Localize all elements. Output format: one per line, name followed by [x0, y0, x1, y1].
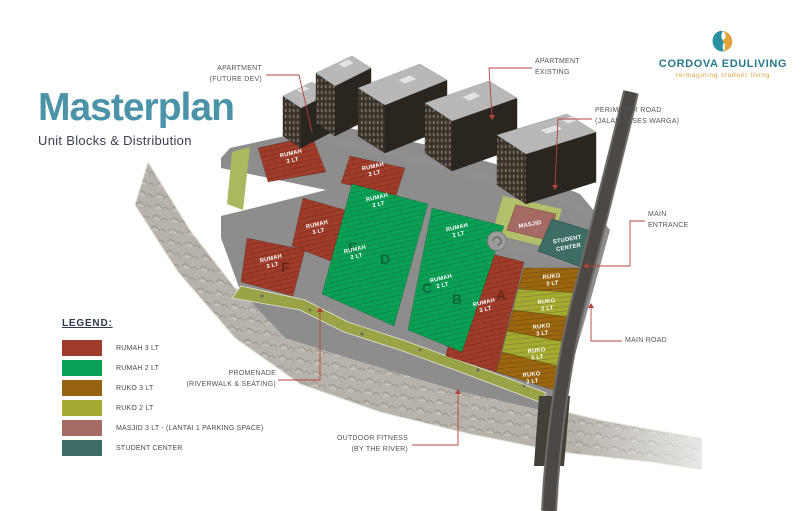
title-block: Masterplan Unit Blocks & Distribution — [38, 88, 234, 148]
callout-text-line: APARTMENT — [170, 64, 262, 75]
roundabout — [488, 232, 507, 251]
callout-text-line: MAIN — [648, 210, 689, 221]
callout-apartment-future: APARTMENT (FUTURE DEV) — [170, 64, 262, 86]
callout-text-line: APARTMENT — [535, 57, 580, 68]
page-subtitle: Unit Blocks & Distribution — [38, 133, 234, 148]
block-letter-f: F — [281, 259, 290, 275]
legend-item: STUDENT CENTER — [62, 440, 263, 456]
callout-text-line: (RIVERWALK & SEATING) — [158, 380, 276, 391]
logo-name: CORDOVA EDULIVING — [648, 58, 798, 70]
callout-text-line: ENTRANCE — [648, 221, 689, 232]
legend-item-label: STUDENT CENTER — [116, 445, 182, 452]
legend-item-label: RUKO 2 LT — [116, 405, 153, 412]
callout-text-line: (FUTURE DEV) — [170, 75, 262, 86]
legend-swatch-student-center — [62, 440, 102, 456]
callout-main-road: MAIN ROAD — [625, 336, 667, 347]
legend-item: RUKO 2 LT — [62, 400, 263, 416]
callout-text-line: OUTDOOR FITNESS — [296, 434, 408, 445]
block-letter-b: B — [452, 291, 462, 307]
logo-icon — [708, 28, 738, 56]
callout-text-line: PERIMETER ROAD — [595, 106, 679, 117]
legend-swatch-rumah-3lt — [62, 340, 102, 356]
legend-swatch-ruko-3lt — [62, 380, 102, 396]
legend-item-label: RUMAH 2 LT — [116, 365, 159, 372]
callout-main-entrance: MAIN ENTRANCE — [648, 210, 689, 232]
leader-main-road — [591, 305, 622, 341]
legend-swatch-rumah-2lt — [62, 360, 102, 376]
callout-apartment-existing: APARTMENT EXISTING — [535, 57, 580, 79]
brand-logo: CORDOVA EDULIVING reimagining student li… — [648, 28, 798, 79]
legend-item-label: RUKO 3 LT — [116, 385, 153, 392]
callout-perimeter-road: PERIMETER ROAD (JALAN AKSES WARGA) — [595, 106, 679, 128]
block-letter-a: A — [496, 287, 506, 303]
legend-swatch-masjid — [62, 420, 102, 436]
callout-text-line: (JALAN AKSES WARGA) — [595, 117, 679, 128]
masterplan-page: E D C B A F RUMAH3 LT RUMAH3 LT RUMAH3 L… — [0, 0, 804, 511]
legend-item: RUMAH 3 LT — [62, 340, 263, 356]
legend-item: MASJID 3 LT - (LANTAI 1 PARKING SPACE) — [62, 420, 263, 436]
callout-text-line: EXISTING — [535, 68, 580, 79]
callout-text-line: (BY THE RIVER) — [296, 445, 408, 456]
legend-item-label: RUMAH 3 LT — [116, 345, 159, 352]
page-title: Masterplan — [38, 88, 234, 127]
logo-tagline: reimagining student living — [648, 72, 798, 79]
block-letter-d: D — [380, 251, 390, 267]
callout-promenade: PROMENADE (RIVERWALK & SEATING) — [158, 369, 276, 391]
callout-text-line: PROMENADE — [158, 369, 276, 380]
legend-title: LEGEND: — [62, 318, 263, 329]
callout-outdoor-fitness: OUTDOOR FITNESS (BY THE RIVER) — [296, 434, 408, 456]
legend-swatch-ruko-2lt — [62, 400, 102, 416]
legend-item-label: MASJID 3 LT - (LANTAI 1 PARKING SPACE) — [116, 425, 263, 432]
callout-text-line: MAIN ROAD — [625, 336, 667, 347]
